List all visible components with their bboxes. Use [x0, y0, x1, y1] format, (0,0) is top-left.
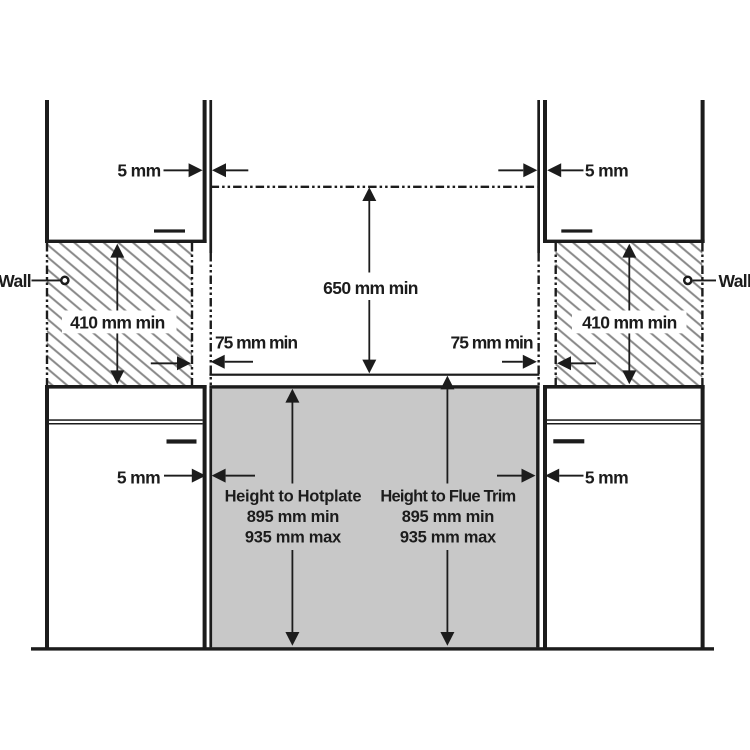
- svg-text:895 mm min: 895 mm min: [247, 508, 340, 526]
- svg-text:410 mm min: 410 mm min: [70, 312, 165, 332]
- svg-text:Height to Flue Trim: Height to Flue Trim: [380, 487, 515, 505]
- svg-text:410 mm min: 410 mm min: [582, 312, 677, 332]
- svg-text:5 mm: 5 mm: [117, 468, 160, 488]
- svg-text:895 mm min: 895 mm min: [402, 508, 495, 526]
- svg-text:Wall: Wall: [0, 271, 31, 291]
- svg-text:5 mm: 5 mm: [117, 161, 160, 181]
- svg-text:650 mm min: 650 mm min: [323, 278, 418, 298]
- svg-text:5 mm: 5 mm: [585, 161, 628, 181]
- svg-text:935 mm max: 935 mm max: [400, 529, 497, 547]
- svg-text:75 mm min: 75 mm min: [451, 333, 533, 353]
- svg-text:Height to Hotplate: Height to Hotplate: [225, 487, 362, 505]
- svg-text:935 mm max: 935 mm max: [245, 529, 342, 547]
- svg-text:Wall: Wall: [719, 271, 750, 291]
- svg-text:75 mm min: 75 mm min: [215, 333, 297, 353]
- svg-text:5 mm: 5 mm: [585, 468, 628, 488]
